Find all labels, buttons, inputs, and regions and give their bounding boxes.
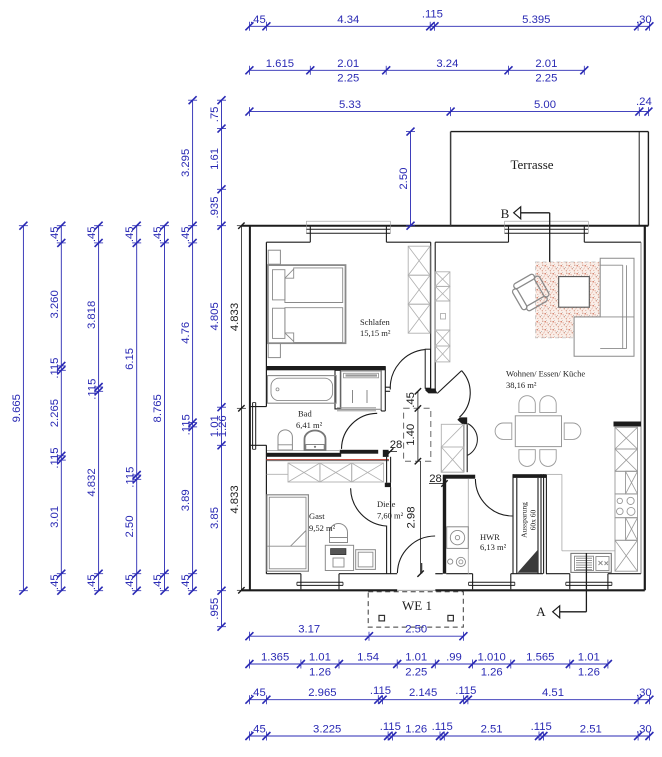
- svg-text:38,16 m²: 38,16 m²: [506, 380, 537, 390]
- svg-text:.115: .115: [531, 721, 552, 733]
- svg-text:Schlafen: Schlafen: [360, 317, 390, 327]
- svg-text:.30: .30: [636, 687, 652, 699]
- svg-text:3.85: 3.85: [209, 507, 221, 529]
- svg-text:.115: .115: [49, 358, 61, 379]
- svg-text:.30: .30: [636, 724, 652, 736]
- svg-text:9.665: 9.665: [11, 394, 23, 422]
- svg-text:2.51: 2.51: [580, 724, 602, 736]
- svg-text:4.34: 4.34: [337, 14, 359, 26]
- svg-text:3.818: 3.818: [86, 301, 98, 329]
- svg-text:4.832: 4.832: [86, 468, 98, 496]
- svg-text:1.615: 1.615: [266, 58, 294, 70]
- svg-text:5.33: 5.33: [339, 99, 361, 111]
- svg-text:WE 1: WE 1: [402, 598, 432, 613]
- svg-text:B: B: [501, 206, 510, 221]
- svg-text:.45: .45: [86, 226, 98, 242]
- svg-text:15,15 m²: 15,15 m²: [360, 328, 391, 338]
- svg-text:3.89: 3.89: [180, 489, 192, 511]
- svg-text:.45: .45: [152, 226, 164, 242]
- svg-text:.935: .935: [209, 197, 221, 219]
- svg-text:Diele: Diele: [377, 499, 396, 509]
- svg-text:3.17: 3.17: [298, 624, 320, 636]
- svg-text:5.00: 5.00: [534, 99, 556, 111]
- svg-text:2.01: 2.01: [337, 58, 359, 70]
- svg-text:2.01: 2.01: [535, 58, 557, 70]
- svg-text:.115: .115: [49, 447, 61, 468]
- svg-text:.45: .45: [124, 226, 136, 242]
- svg-text:Bad: Bad: [298, 409, 312, 419]
- svg-text:4.76: 4.76: [180, 322, 192, 344]
- svg-text:.45: .45: [250, 687, 266, 699]
- svg-text:5.395: 5.395: [522, 14, 550, 26]
- svg-text:3.225: 3.225: [313, 724, 341, 736]
- svg-text:1.01: 1.01: [309, 652, 331, 664]
- svg-text:6.15: 6.15: [124, 348, 136, 370]
- svg-text:.45: .45: [49, 226, 61, 242]
- svg-text:.99: .99: [446, 652, 462, 664]
- svg-text:1.010: 1.010: [478, 652, 506, 664]
- svg-text:.115: .115: [422, 9, 443, 21]
- svg-text:4.805: 4.805: [209, 302, 221, 330]
- svg-text:2.965: 2.965: [308, 687, 336, 699]
- svg-text:.30: .30: [636, 14, 652, 26]
- svg-text:4.51: 4.51: [542, 687, 564, 699]
- svg-text:1.01: 1.01: [405, 652, 427, 664]
- svg-text:6,41 m²: 6,41 m²: [296, 420, 323, 430]
- svg-text:.115: .115: [455, 685, 476, 697]
- svg-text:1.365: 1.365: [261, 652, 289, 664]
- svg-text:.45: .45: [180, 574, 192, 590]
- svg-text:4.833: 4.833: [229, 485, 241, 513]
- svg-text:2.98: 2.98: [406, 507, 418, 529]
- svg-text:.115: .115: [380, 721, 401, 733]
- svg-text:2.50: 2.50: [405, 624, 427, 636]
- svg-text:2.25: 2.25: [535, 73, 557, 85]
- svg-text:8.765: 8.765: [152, 394, 164, 422]
- svg-text:.45: .45: [49, 574, 61, 590]
- svg-text:.75: .75: [209, 107, 221, 123]
- svg-text:Aussparung: Aussparung: [520, 502, 529, 538]
- svg-text:.45: .45: [152, 574, 164, 590]
- svg-text:7,60 m²: 7,60 m²: [377, 511, 404, 521]
- svg-text:Wohnen/ Essen/ Küche: Wohnen/ Essen/ Küche: [506, 369, 585, 379]
- svg-text:.45: .45: [250, 724, 266, 736]
- svg-text:3.260: 3.260: [49, 290, 61, 318]
- svg-text:2.25: 2.25: [405, 667, 427, 679]
- svg-text:A: A: [536, 604, 546, 619]
- svg-text:.115: .115: [432, 721, 453, 733]
- svg-text:1.26: 1.26: [578, 667, 600, 679]
- svg-text:2.50: 2.50: [124, 516, 136, 538]
- svg-text:60x 60: 60x 60: [529, 509, 538, 530]
- svg-text:.45: .45: [180, 226, 192, 242]
- svg-text:3.295: 3.295: [180, 149, 192, 177]
- svg-text:.24: .24: [636, 96, 652, 108]
- svg-text:1.565: 1.565: [526, 652, 554, 664]
- svg-text:2.145: 2.145: [409, 687, 437, 699]
- svg-text:Terrasse: Terrasse: [510, 157, 553, 172]
- svg-text:1.61: 1.61: [209, 148, 221, 170]
- svg-text:.45: .45: [86, 574, 98, 590]
- svg-text:2.51: 2.51: [481, 724, 503, 736]
- svg-text:2.50: 2.50: [398, 168, 410, 190]
- svg-text:2.25: 2.25: [337, 73, 359, 85]
- svg-text:Gast: Gast: [309, 511, 325, 521]
- svg-text:HWR: HWR: [480, 532, 500, 542]
- svg-text:.45: .45: [124, 574, 136, 590]
- svg-text:1.26: 1.26: [217, 415, 229, 437]
- svg-text:.955: .955: [209, 598, 221, 620]
- svg-text:3.01: 3.01: [49, 506, 61, 528]
- svg-text:.115: .115: [86, 379, 98, 400]
- svg-text:4.833: 4.833: [229, 303, 241, 331]
- svg-text:1.01: 1.01: [578, 652, 600, 664]
- svg-text:6,13 m²: 6,13 m²: [480, 542, 507, 552]
- svg-text:1.26: 1.26: [405, 724, 427, 736]
- svg-text:1.54: 1.54: [357, 652, 379, 664]
- svg-text:1.26: 1.26: [309, 667, 331, 679]
- svg-text:1.26: 1.26: [481, 667, 503, 679]
- svg-text:9,52 m²: 9,52 m²: [309, 523, 336, 533]
- svg-text:.45: .45: [250, 14, 266, 26]
- svg-text:2.265: 2.265: [49, 399, 61, 427]
- svg-text:.115: .115: [125, 467, 137, 488]
- svg-text:.115: .115: [370, 685, 391, 697]
- svg-text:.115: .115: [180, 414, 192, 435]
- svg-text:.45: .45: [405, 392, 417, 408]
- svg-text:3.24: 3.24: [436, 58, 458, 70]
- svg-text:1.40: 1.40: [405, 424, 417, 446]
